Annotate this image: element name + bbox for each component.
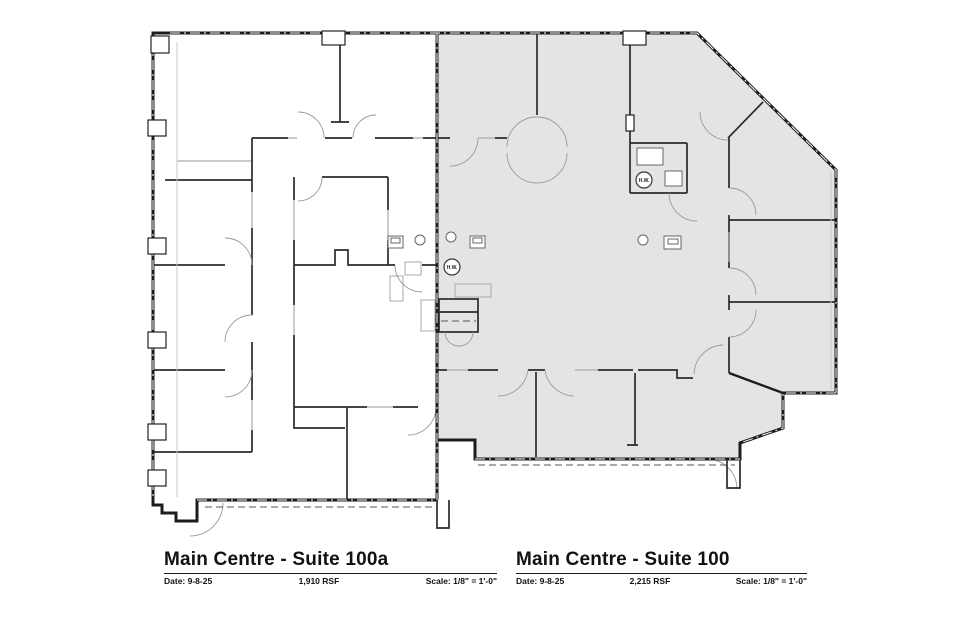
suite-100a-rsf: 1,910 RSF (299, 576, 340, 586)
workstation-desk (388, 236, 403, 248)
suite-100a-interior-walls (153, 33, 437, 500)
titleblock-suite-100a: Main Centre - Suite 100a Date: 9-8-25 1,… (164, 549, 497, 586)
hw-label-1: H.W. (444, 259, 460, 275)
suite-100-scale: Scale: 1/8" = 1'-0" (736, 576, 807, 586)
workstation-desk (470, 236, 485, 248)
hw-label-2-text: H.W. (639, 178, 650, 184)
titleblock-suite-100: Main Centre - Suite 100 Date: 9-8-25 2,2… (516, 549, 807, 586)
hw-label-1-text: H.W. (447, 265, 458, 271)
suite-100a-title: Main Centre - Suite 100a (164, 549, 497, 574)
suite-100-date: Date: 9-8-25 (516, 576, 564, 586)
suite-100-area (437, 33, 836, 459)
floor-plan-sheet: H.W. H.W. Main Centre - Suite 100a Date:… (0, 0, 960, 621)
suite-100-title: Main Centre - Suite 100 (516, 549, 807, 574)
chair (446, 232, 456, 242)
chair (415, 235, 425, 245)
workstation-desk (664, 236, 681, 249)
suite-100a-date: Date: 9-8-25 (164, 576, 212, 586)
hw-label-2: H.W. (636, 172, 652, 188)
suite-100-rsf: 2,215 RSF (630, 576, 671, 586)
suite-100a-scale: Scale: 1/8" = 1'-0" (426, 576, 497, 586)
chair (638, 235, 648, 245)
floor-plan-drawing: H.W. H.W. (0, 0, 960, 621)
